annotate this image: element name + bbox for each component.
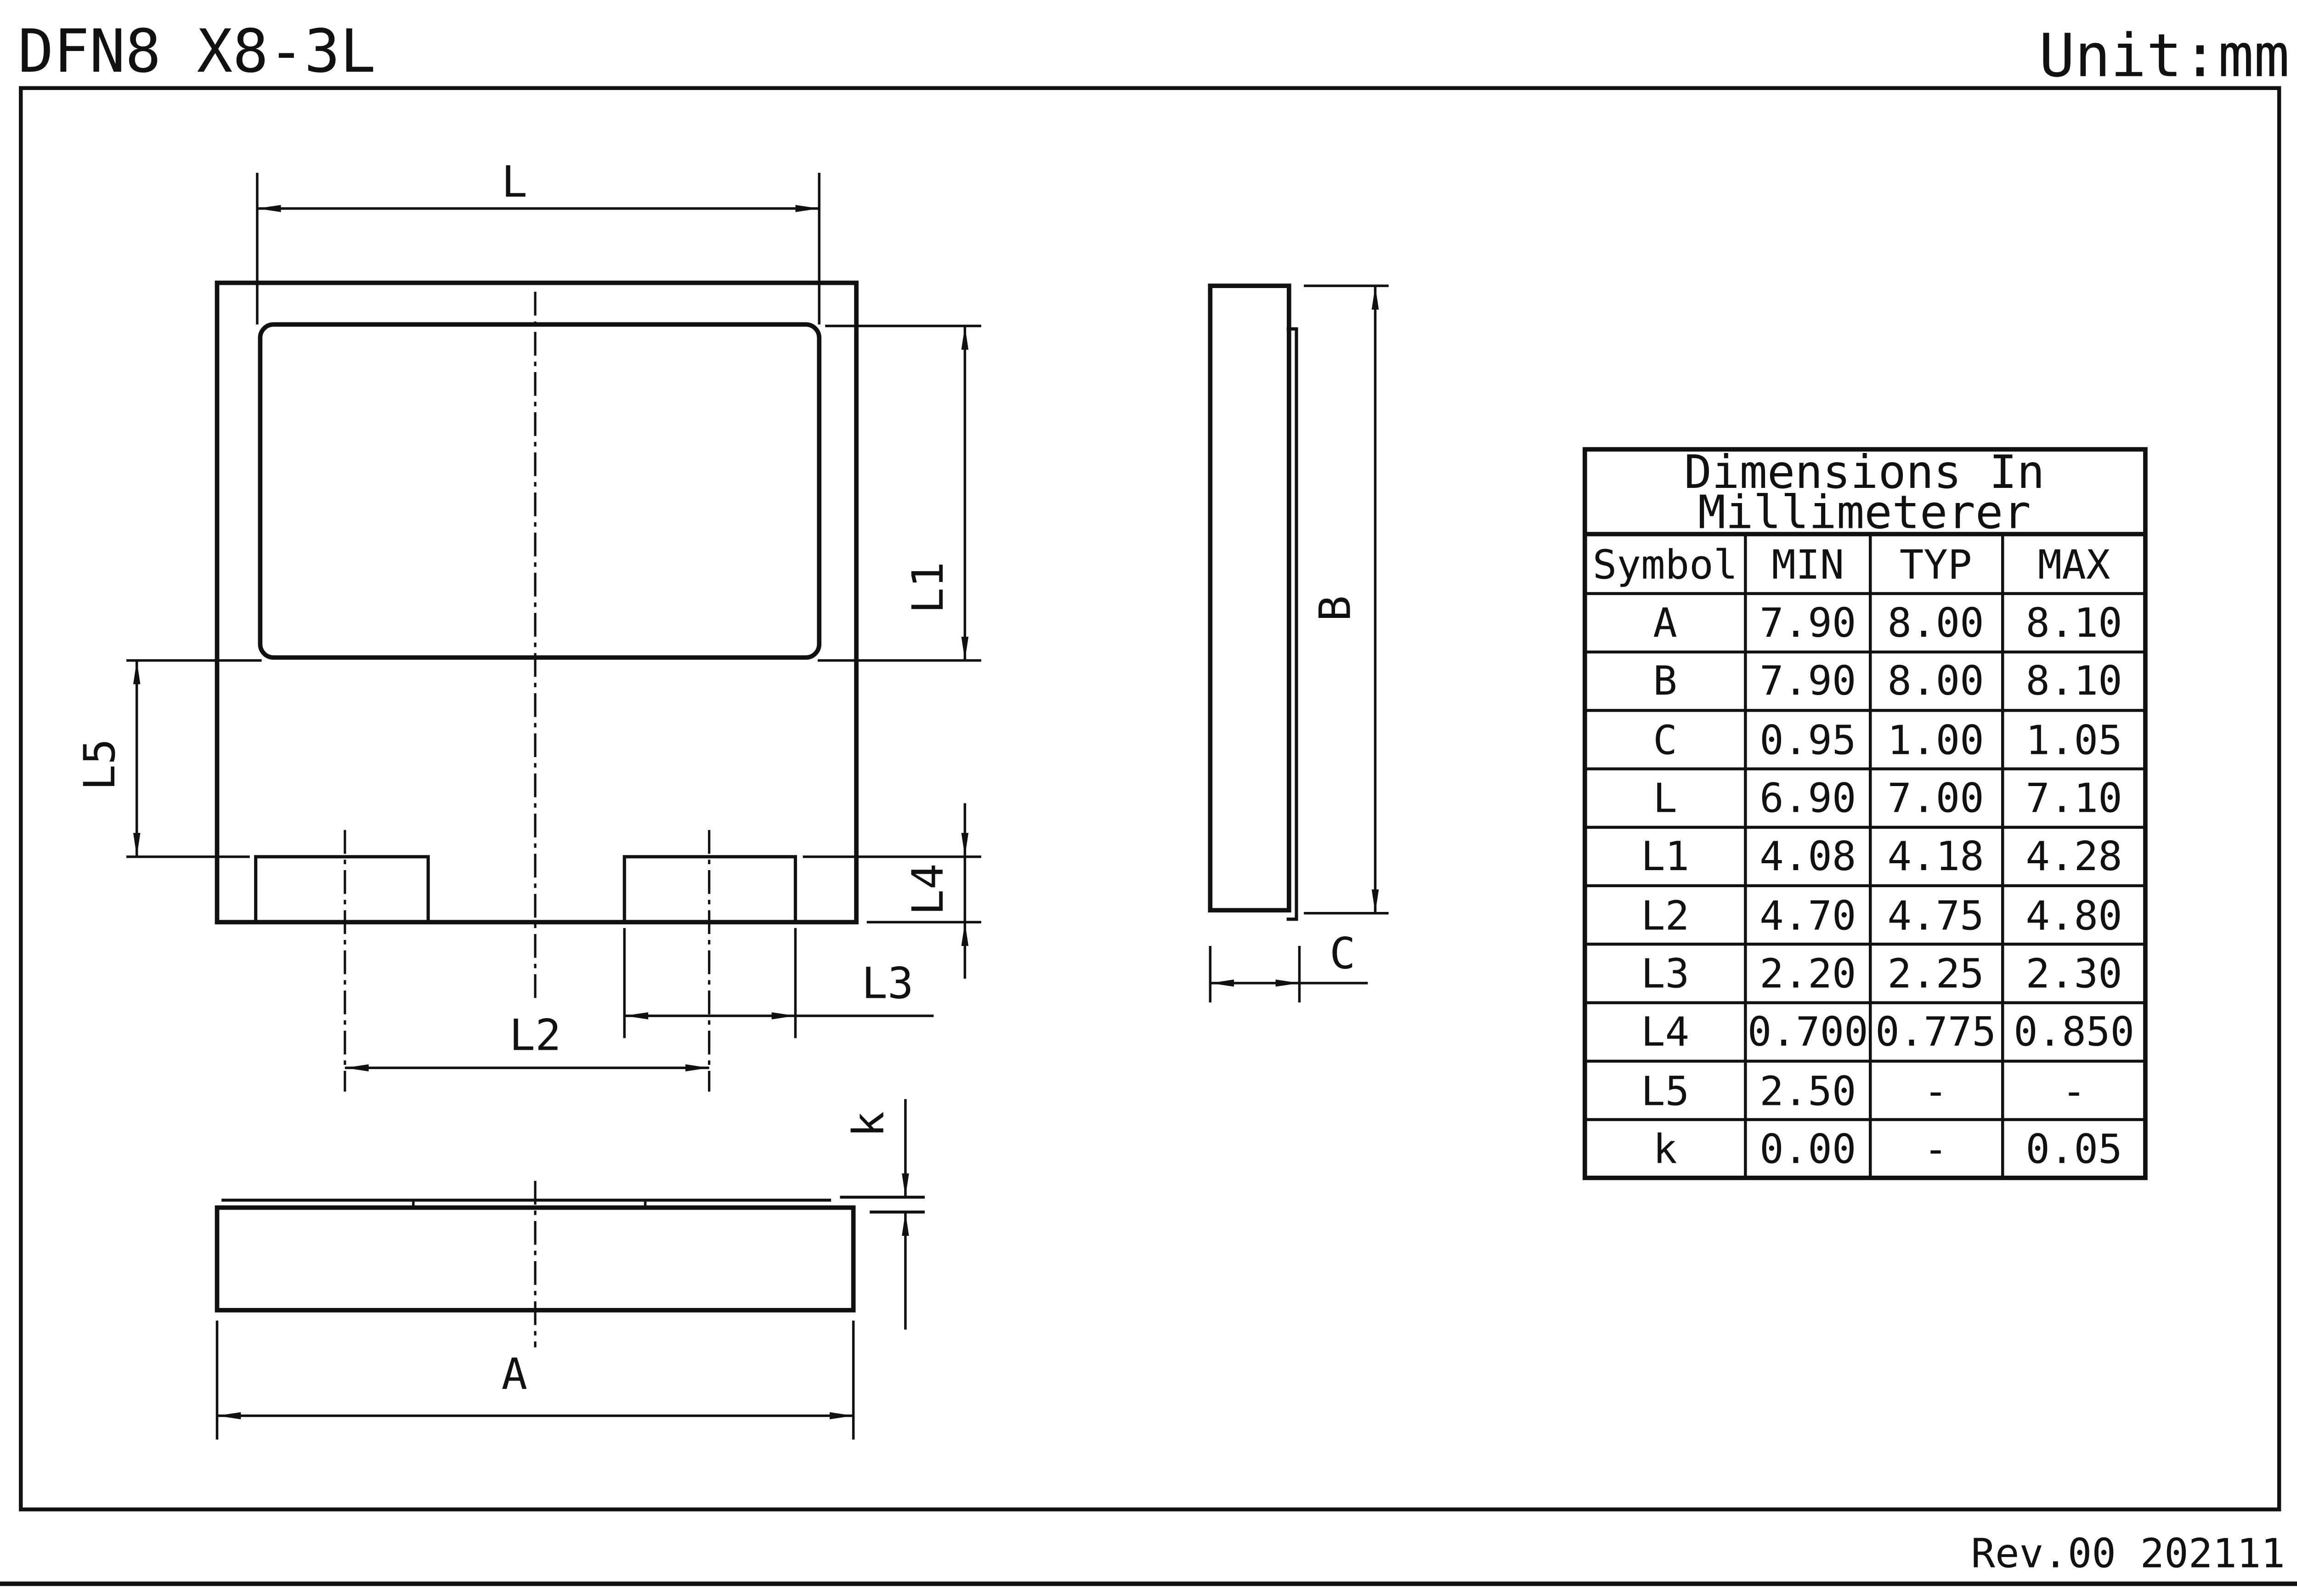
dim-B: B [1304, 286, 1388, 913]
table-header-typ: TYP [1900, 542, 1972, 589]
cell-symbol: k [1653, 1126, 1677, 1172]
cell-min: 7.90 [1760, 600, 1856, 646]
cell-symbol: L4 [1641, 1008, 1689, 1055]
dim-label-B: B [1311, 595, 1361, 622]
top-view: L L1 L5 L4 [75, 157, 981, 1092]
cell-typ: 4.75 [1887, 892, 1984, 939]
cell-typ: 0.775 [1875, 1008, 1996, 1055]
dim-label-A: A [501, 1349, 527, 1399]
cell-min: 2.50 [1760, 1068, 1856, 1115]
cell-min: 4.08 [1760, 833, 1856, 880]
unit-label: Unit:mm [2039, 21, 2290, 91]
cell-symbol: L2 [1641, 892, 1689, 939]
cell-symbol: C [1653, 717, 1677, 764]
dim-L4: L4 [803, 803, 981, 979]
cell-max: 8.10 [2025, 600, 2122, 646]
table-row: L5 2.50 - - [1641, 1068, 2086, 1115]
table-row: L4 0.700 0.775 0.850 [1641, 1008, 2134, 1055]
cell-max: - [2062, 1068, 2086, 1115]
table-header-symbol: Symbol [1593, 542, 1738, 589]
dim-label-k: k [843, 1111, 894, 1138]
dim-label-L: L [501, 157, 527, 207]
cell-symbol: L5 [1641, 1068, 1689, 1115]
table-row: B 7.90 8.00 8.10 [1653, 657, 2122, 704]
dim-A: A [217, 1321, 853, 1440]
cell-min: 7.90 [1760, 657, 1856, 704]
cell-max: 1.05 [2025, 717, 2122, 764]
cell-max: 4.28 [2025, 833, 2122, 880]
cell-typ: 4.18 [1887, 833, 1984, 880]
cell-typ: 1.00 [1887, 717, 1984, 764]
dim-L2: L2 [345, 1011, 709, 1068]
cell-symbol: A [1653, 600, 1677, 646]
side-view-body [1210, 286, 1289, 910]
cell-typ: 2.25 [1887, 951, 1984, 997]
dim-label-L4: L4 [903, 864, 953, 916]
dim-label-L1: L1 [903, 562, 953, 614]
cell-min: 0.700 [1748, 1008, 1868, 1055]
cell-max: 0.850 [2014, 1008, 2134, 1055]
dim-label-L5: L5 [75, 739, 125, 791]
dim-L1: L1 [126, 326, 981, 660]
cell-max: 8.10 [2025, 657, 2122, 704]
dim-label-L2: L2 [509, 1011, 561, 1061]
cell-min: 4.70 [1760, 892, 1856, 939]
cell-max: 7.10 [2025, 775, 2122, 822]
cell-min: 6.90 [1760, 775, 1856, 822]
table-row: L1 4.08 4.18 4.28 [1641, 833, 2122, 880]
cell-max: 0.05 [2025, 1126, 2122, 1172]
dim-label-C: C [1330, 929, 1356, 979]
top-view-lead-left [256, 857, 428, 922]
drawing-title: DFN8 X8-3L [18, 17, 376, 86]
dim-C: C [1210, 929, 1368, 1002]
dim-L: L [257, 157, 819, 324]
top-view-exposed-pad [260, 324, 819, 657]
cell-max: 2.30 [2025, 951, 2122, 997]
cell-symbol: B [1653, 657, 1677, 704]
top-view-body-outline [217, 283, 856, 923]
table-row: k 0.00 - 0.05 [1653, 1126, 2122, 1172]
bottom-view: k A [217, 1099, 924, 1439]
side-view: B C [1210, 286, 1388, 1002]
table-header-min: MIN [1771, 542, 1844, 589]
cell-typ: - [1924, 1126, 1948, 1172]
dimensions-table: Dimensions In Millimeterer Symbol MIN TY… [1585, 445, 2145, 1178]
cell-symbol: L3 [1641, 951, 1689, 997]
table-row: L 6.90 7.00 7.10 [1653, 775, 2122, 822]
table-row: A 7.90 8.00 8.10 [1653, 600, 2122, 646]
cell-typ: 8.00 [1887, 657, 1984, 704]
dim-L3: L3 [624, 928, 934, 1038]
cell-min: 0.95 [1760, 717, 1856, 764]
table-row: C 0.95 1.00 1.05 [1653, 717, 2122, 764]
package-outline-drawing: DFN8 X8-3L Unit:mm Rev.00 202111 L L1 [0, 0, 2297, 1596]
cell-typ: 7.00 [1887, 775, 1984, 822]
cell-symbol: L [1653, 775, 1677, 822]
dim-L5: L5 [75, 661, 249, 857]
cell-symbol: L1 [1641, 833, 1689, 880]
table-row: L2 4.70 4.75 4.80 [1641, 892, 2122, 939]
cell-typ: - [1924, 1068, 1948, 1115]
table-header-row: Symbol MIN TYP MAX [1593, 542, 2110, 589]
table-header-max: MAX [2038, 542, 2110, 589]
cell-typ: 8.00 [1887, 600, 1984, 646]
table-title-line2: Millimeterer [1698, 486, 2031, 539]
dim-label-L3: L3 [862, 958, 914, 1008]
table-row: L3 2.20 2.25 2.30 [1641, 951, 2122, 997]
cell-min: 0.00 [1760, 1126, 1856, 1172]
cell-min: 2.20 [1760, 951, 1856, 997]
revision-label: Rev.00 202111 [1971, 1530, 2285, 1577]
cell-max: 4.80 [2025, 892, 2122, 939]
